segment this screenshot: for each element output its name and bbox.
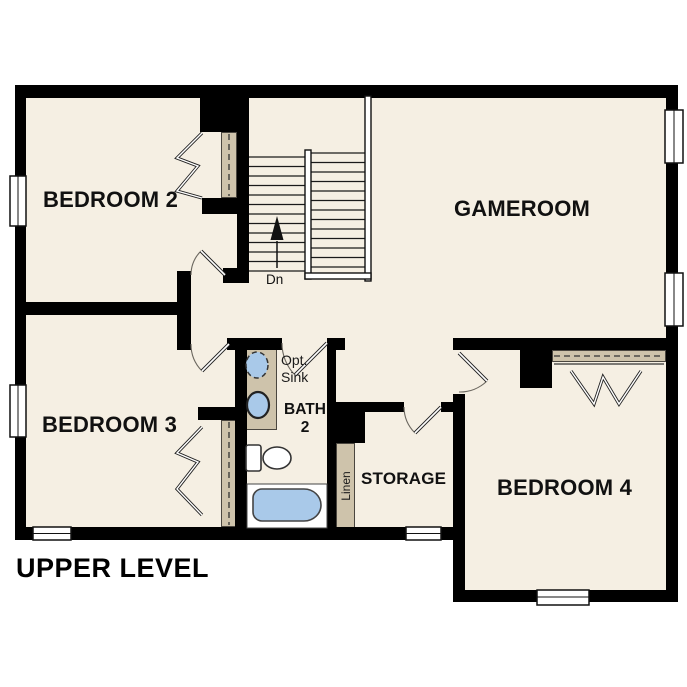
wall-bath-north xyxy=(235,338,282,350)
label-stairs-down: Dn xyxy=(266,272,283,287)
label-bath2: BATH 2 xyxy=(282,401,328,437)
wall-bedroom2-closet-bottom xyxy=(202,198,247,214)
label-storage: STORAGE xyxy=(361,470,446,487)
bedroom4-closet-shelf xyxy=(552,350,666,362)
wall-storage-door-stub xyxy=(441,402,453,412)
label-linen: Linen xyxy=(339,471,353,500)
wall-exterior-top xyxy=(15,85,678,98)
label-bath2-line2: 2 xyxy=(282,419,328,437)
wall-hall-linen-chunk xyxy=(327,402,365,443)
label-optional-sink-line2: Sink xyxy=(281,369,308,386)
label-bedroom2: BEDROOM 2 xyxy=(43,189,178,211)
wall-storage-top xyxy=(365,402,404,412)
wall-bedroom4-west xyxy=(453,394,465,590)
wall-bedroom3-closet-top xyxy=(198,407,247,420)
label-optional-sink-line1: Opt. xyxy=(281,352,308,369)
label-optional-sink: Opt. Sink xyxy=(281,352,308,386)
label-bedroom3: BEDROOM 3 xyxy=(42,414,177,436)
floor-plan-upper-level: BEDROOM 2 GAMEROOM BEDROOM 3 BEDROOM 4 S… xyxy=(0,0,687,687)
page-title: UPPER LEVEL xyxy=(16,553,209,584)
wall-hall-jamb-vertical xyxy=(177,271,191,350)
wall-stairs-west xyxy=(237,98,249,283)
wall-exterior-bottom-left xyxy=(15,527,465,540)
bath-vanity-counter xyxy=(245,345,277,430)
label-bedroom4: BEDROOM 4 xyxy=(497,477,632,499)
wall-bedroom4-nook-chunk xyxy=(520,338,552,388)
bedroom2-closet-shelf xyxy=(221,132,237,198)
wall-bedroom2-bedroom3-divider xyxy=(15,302,191,315)
wall-bath-west xyxy=(235,338,247,528)
label-gameroom: GAMEROOM xyxy=(454,198,590,220)
wall-gameroom-bottom xyxy=(453,338,678,350)
label-bath2-line1: BATH xyxy=(282,401,328,419)
wall-exterior-bottom-bedroom4 xyxy=(453,590,678,602)
